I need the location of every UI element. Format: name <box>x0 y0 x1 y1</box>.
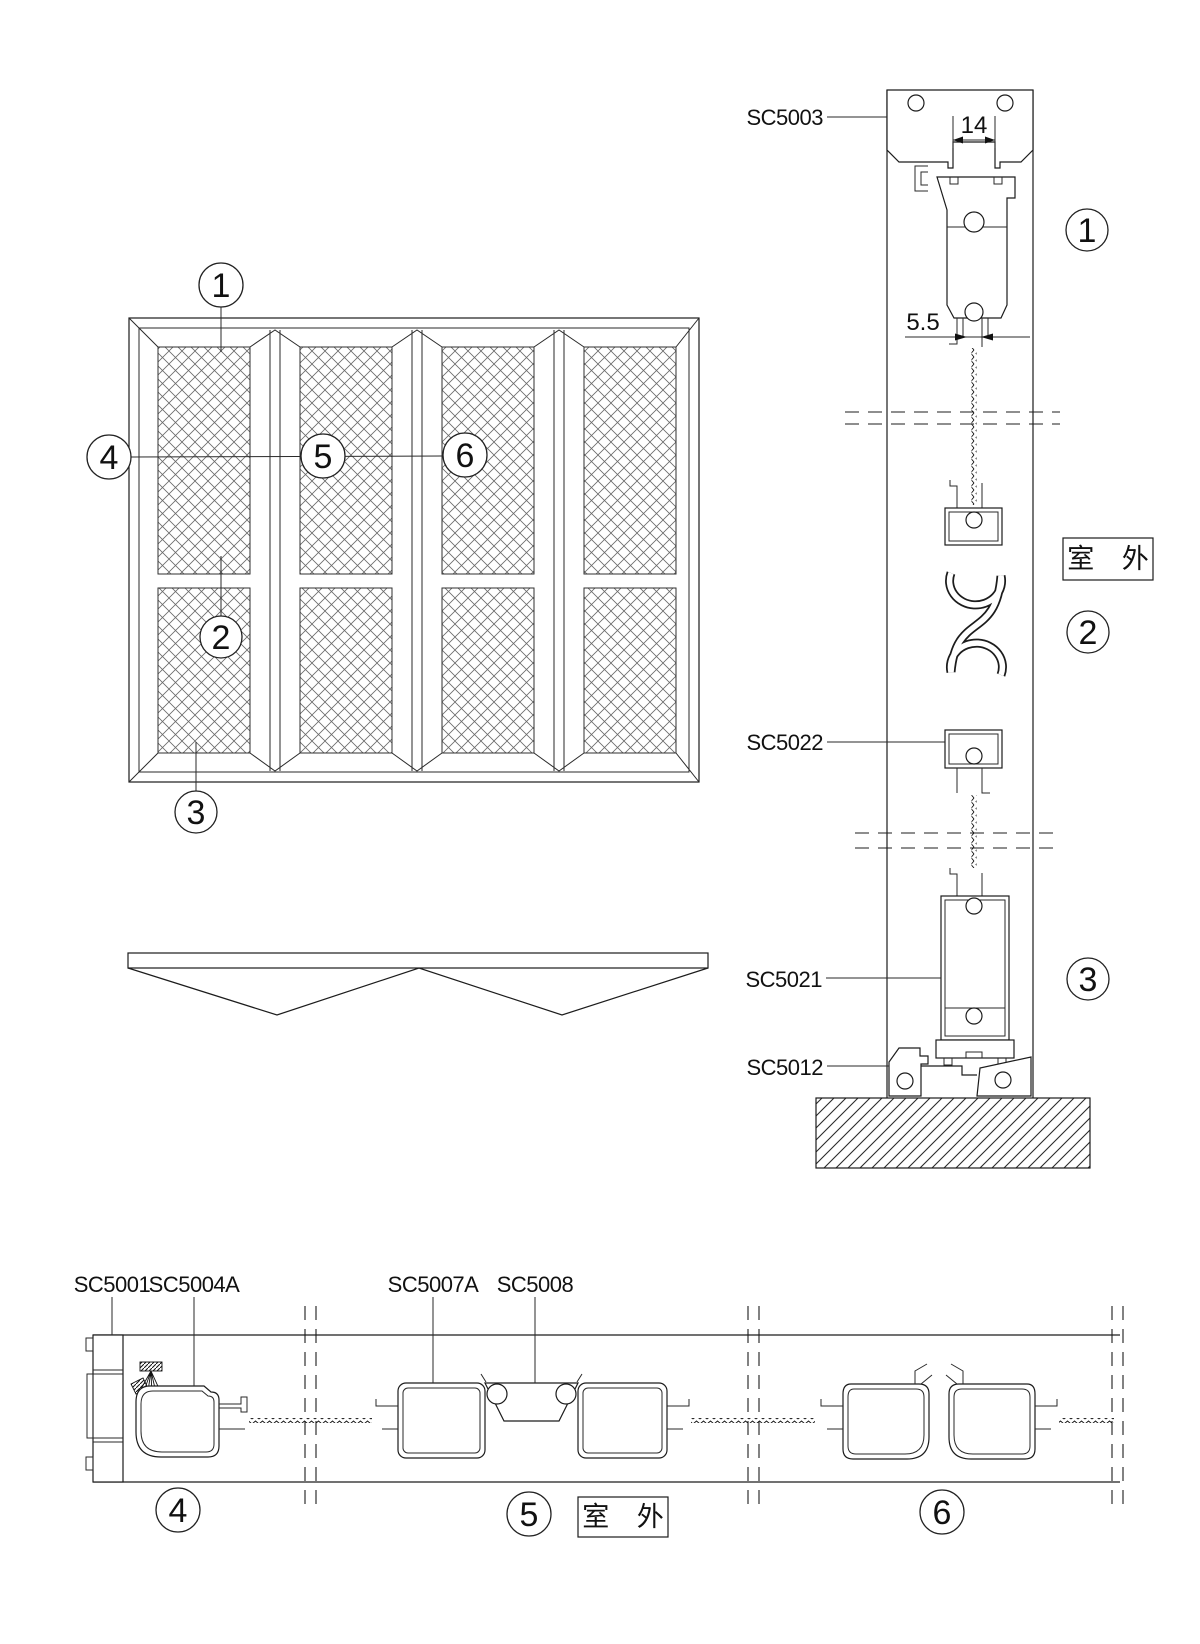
vertical-section-view: 14 5.5 <box>745 90 1158 1168</box>
screen-mesh-line <box>1059 1418 1114 1423</box>
meeting-stile-profile-sc5007a <box>376 1383 485 1458</box>
label-sc5012: SC5012 <box>746 1055 823 1080</box>
outdoor-label-text: 室 外 <box>582 1502 674 1532</box>
screen-mesh-line <box>691 1418 815 1423</box>
label-sc5004a: SC5004A <box>149 1272 241 1297</box>
mesh-panel <box>584 347 676 574</box>
upper-sash-profile <box>937 177 1015 318</box>
s-coupler-profile-sc5022 <box>945 480 1002 793</box>
section-1-number: 1 <box>1078 212 1097 250</box>
callout-4-number: 4 <box>100 439 119 477</box>
plan-view <box>128 953 708 1015</box>
mesh-panels <box>158 347 676 753</box>
label-sc5003: SC5003 <box>746 105 823 130</box>
break-line-lower <box>855 833 1062 848</box>
mesh-panel <box>158 347 250 574</box>
drawing-canvas: 1 4 5 6 2 3 14 <box>0 0 1200 1644</box>
dimension-14-text: 14 <box>961 112 988 139</box>
break-line-upper <box>845 412 1060 424</box>
bottom-sash-profile-sc5021 <box>936 868 1014 1065</box>
callout-3-number: 3 <box>187 794 206 832</box>
ground-hatch <box>816 1098 1090 1168</box>
cad-sheet: 1 4 5 6 2 3 14 <box>0 0 1200 1644</box>
label-sc5008: SC5008 <box>497 1272 574 1297</box>
mesh-panel <box>442 588 534 753</box>
label-sc5007a: SC5007A <box>388 1272 480 1297</box>
callout-6-number: 6 <box>456 437 475 475</box>
section-6-number: 6 <box>933 1494 952 1532</box>
interlock-stile-right <box>946 1364 1057 1459</box>
section-4-number: 4 <box>169 1492 188 1530</box>
screen-mesh-line <box>249 1418 372 1423</box>
coupler-profile-sc5008 <box>481 1374 582 1421</box>
label-sc5022: SC5022 <box>746 730 823 755</box>
head-clip-profile <box>915 166 928 191</box>
callout-1-number: 1 <box>212 267 231 305</box>
callout-5-number: 5 <box>314 438 333 476</box>
screw-port-icon <box>965 303 983 321</box>
label-sc5001: SC5001 <box>74 1272 151 1297</box>
sash-feet <box>949 318 988 347</box>
mesh-panel <box>158 588 250 753</box>
plan-panel-swing-lines <box>128 968 708 1015</box>
plan-track-bar <box>128 953 708 968</box>
section-2-number: 2 <box>1079 614 1098 652</box>
screw-port-icon <box>997 95 1013 111</box>
section-5-number: 5 <box>520 1496 539 1534</box>
mesh-panel <box>300 588 392 753</box>
dimension-5-5-text: 5.5 <box>906 309 939 336</box>
elevation-view: 1 4 5 6 2 3 <box>87 263 699 833</box>
mesh-panel <box>584 588 676 753</box>
outdoor-label-text: 室 外 <box>1067 544 1159 574</box>
screen-mesh-line <box>972 795 977 868</box>
screw-port-icon <box>964 212 984 232</box>
jamb-profile-sc5001 <box>86 1335 123 1482</box>
section-3-number: 3 <box>1079 961 1098 999</box>
callout-2-number: 2 <box>212 619 231 657</box>
horizontal-section-view: SC5001 SC5004A SC5007A SC5008 4 5 室 外 6 <box>74 1272 1123 1537</box>
roller-stile-profile-sc5004a <box>136 1386 247 1457</box>
screen-mesh-line <box>972 348 977 505</box>
interlock-stile-left <box>821 1364 932 1459</box>
label-sc5021: SC5021 <box>745 967 822 992</box>
screw-port-icon <box>908 95 924 111</box>
meeting-stile-right <box>578 1383 689 1458</box>
